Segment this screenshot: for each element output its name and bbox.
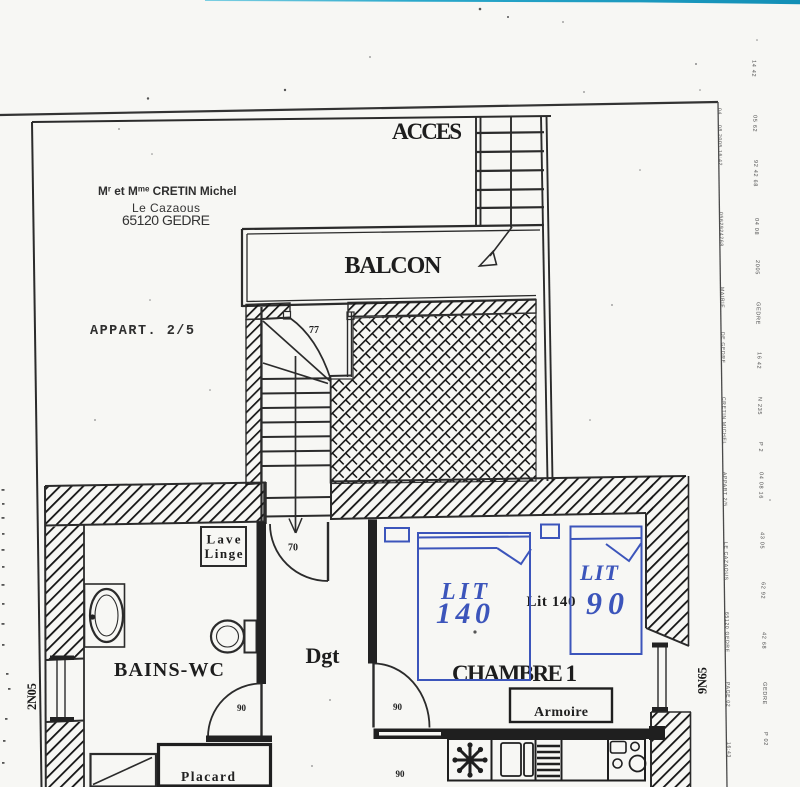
svg-text:65120 GEDRE: 65120 GEDRE — [723, 612, 729, 653]
svg-text:N 235: N 235 — [756, 397, 762, 415]
svg-text:ACCES: ACCES — [392, 119, 462, 144]
svg-text:16 42: 16 42 — [755, 352, 761, 369]
svg-text:GEDRE: GEDRE — [754, 302, 760, 325]
svg-text:LIT: LIT — [579, 560, 620, 585]
svg-text:42 68: 42 68 — [760, 632, 766, 649]
svg-text:PAGE 02: PAGE 02 — [724, 682, 730, 707]
svg-text:Mr et Mme CRETIN Michel: Mr et Mme CRETIN Michel — [98, 184, 237, 198]
svg-text:Lave: Lave — [207, 532, 241, 547]
svg-text:2005: 2005 — [754, 260, 760, 275]
svg-text:CHAMBRE 1: CHAMBRE 1 — [452, 661, 577, 686]
svg-text:MAIRIE: MAIRIE — [719, 287, 725, 308]
svg-text:70: 70 — [288, 543, 298, 554]
svg-text:14 42: 14 42 — [750, 60, 756, 77]
svg-text:90: 90 — [393, 702, 403, 712]
svg-text:Lit 140: Lit 140 — [527, 594, 576, 610]
svg-text:DE GEDRE: DE GEDRE — [719, 332, 725, 364]
svg-text:GEDRE: GEDRE — [761, 682, 767, 705]
svg-text:08 2005 16:42: 08 2005 16:42 — [716, 125, 722, 166]
svg-text:0562924268: 0562924268 — [718, 212, 724, 247]
svg-text:Linge: Linge — [205, 546, 243, 561]
svg-text:65120 GEDRE: 65120 GEDRE — [122, 212, 210, 228]
svg-text:APPART. 2/5: APPART. 2/5 — [90, 324, 195, 339]
svg-text:P 2: P 2 — [757, 442, 763, 452]
svg-text:62 92: 62 92 — [759, 582, 765, 599]
svg-text:92 42 68: 92 42 68 — [752, 160, 759, 187]
svg-text:Dgt: Dgt — [306, 643, 341, 668]
svg-text:2N05: 2N05 — [25, 683, 39, 710]
svg-text:BALCON: BALCON — [345, 253, 443, 279]
svg-text:P 02: P 02 — [762, 732, 768, 746]
svg-text:04: 04 — [716, 108, 722, 115]
svg-text:04 08: 04 08 — [753, 218, 759, 235]
svg-text:04 08 16: 04 08 16 — [757, 472, 764, 499]
svg-text:BAINS-WC: BAINS-WC — [114, 659, 224, 681]
svg-text:APPART 2/5: APPART 2/5 — [721, 472, 727, 507]
svg-text:90: 90 — [396, 769, 406, 779]
svg-text:140: 140 — [436, 597, 490, 630]
svg-text:16:43: 16:43 — [725, 742, 731, 758]
svg-text:43 05: 43 05 — [758, 532, 764, 549]
svg-text:9N65: 9N65 — [696, 667, 710, 694]
svg-text:90: 90 — [237, 703, 247, 713]
svg-text:05 62: 05 62 — [751, 115, 757, 132]
svg-text:CRETIN MICHEL: CRETIN MICHEL — [720, 397, 727, 445]
svg-text:Placard: Placard — [181, 769, 235, 784]
svg-text:77: 77 — [309, 325, 319, 336]
svg-text:Armoire: Armoire — [534, 705, 588, 720]
svg-text:LE CAZAOUS: LE CAZAOUS — [722, 542, 728, 581]
